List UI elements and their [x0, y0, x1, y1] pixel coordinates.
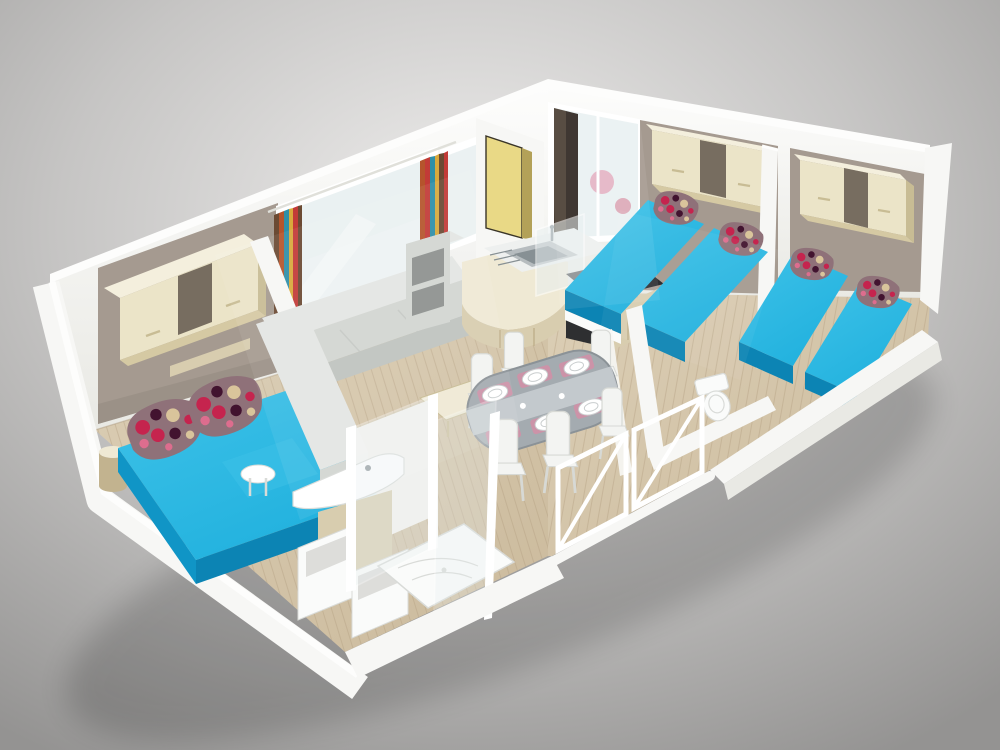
cabinet-door: [486, 136, 522, 238]
stool-top: [241, 465, 275, 483]
cabinet-side: [522, 148, 532, 240]
floorplan-render: [0, 0, 1000, 750]
cabinet-open-cubby: [700, 140, 726, 198]
screenshot-stage: [0, 0, 1000, 750]
cabinet-open-cubby: [844, 168, 868, 228]
kitchen-yellow-cabinet: [486, 136, 532, 240]
cabinet-end: [906, 180, 914, 243]
